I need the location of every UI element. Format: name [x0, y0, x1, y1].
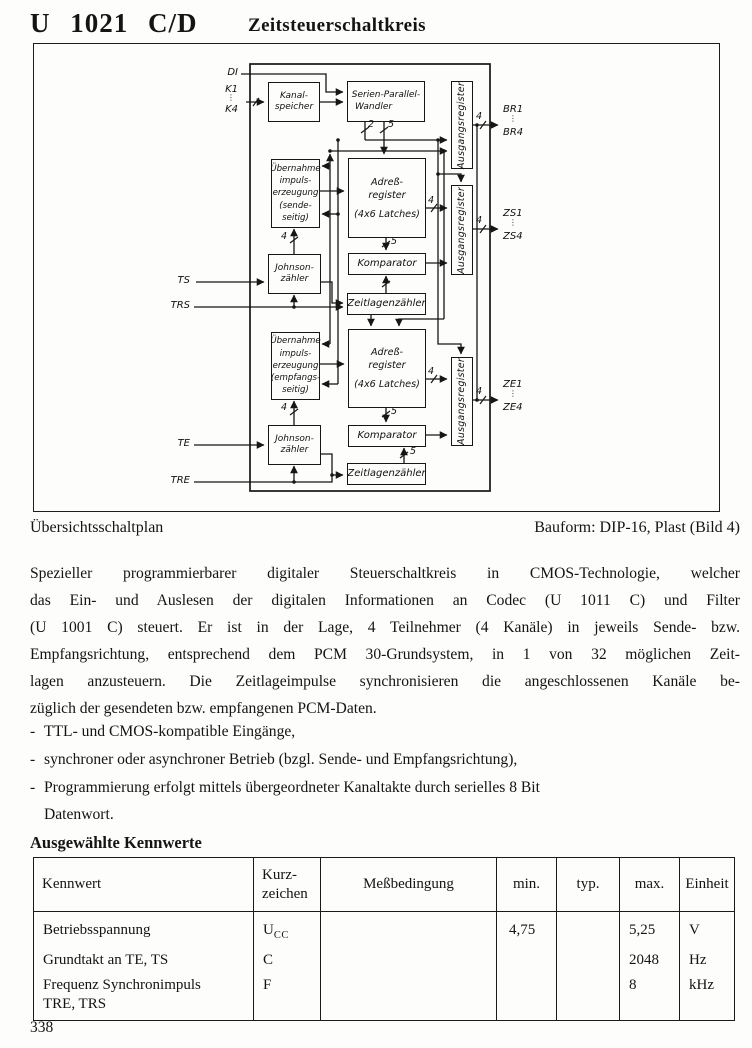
block-label: Serien-Parallel- — [352, 90, 420, 102]
block-johnson-zaehler-empfang: Johnson- zähler — [268, 425, 321, 465]
bus-width-5: 5 — [388, 119, 394, 130]
cell-kennwert: Betriebsspannung Grundtakt an TE, TS Fre… — [34, 912, 254, 1021]
block-label: Adreß- — [371, 176, 403, 189]
value-kennwert: TRE, TRS — [34, 995, 253, 1014]
block-label: Ausgangsregister — [456, 187, 468, 274]
value-typ — [557, 917, 619, 947]
block-serien-parallel-wandler: Serien-Parallel- Wandler — [347, 81, 425, 122]
paragraph-line: züglich der gesendeten bzw. empfangenen … — [30, 695, 740, 722]
block-johnson-zaehler-sende: Johnson- zähler — [268, 254, 321, 294]
value-min — [497, 947, 556, 976]
page-number: 338 — [30, 1019, 53, 1037]
col-header-max: max. — [620, 858, 680, 912]
cell-einheit: V Hz kHz — [680, 912, 735, 1021]
bullet-dash: - — [30, 723, 44, 741]
block-ausgangsregister-ze: Ausgangsregister — [451, 357, 473, 446]
feature-text: synchroner oder asynchroner Betrieb (bzg… — [44, 751, 517, 768]
block-label: Übernahme — [270, 163, 320, 175]
value-kennwert: Betriebsspannung — [34, 917, 253, 947]
col-header-kennwert: Kennwert — [34, 858, 254, 912]
block-ausgangsregister-br: Ausgangsregister — [451, 81, 473, 169]
pin-di: DI — [194, 67, 238, 78]
value-kennwert: Frequenz Synchronimpuls — [34, 976, 253, 995]
value-max: 5,25 — [620, 917, 679, 947]
pin-dots-br: ⋮ — [509, 114, 553, 123]
value-typ — [557, 976, 619, 995]
pin-trs: TRS — [146, 300, 190, 311]
symbol: U — [263, 922, 274, 938]
block-label: seitig) — [282, 212, 309, 224]
cell-min: 4,75 — [497, 912, 557, 1021]
bus-width-4: 4 — [281, 402, 287, 413]
block-komparator-empfang: Komparator — [348, 425, 426, 447]
value-max: 8 — [620, 976, 679, 995]
value-messbedingung — [321, 947, 496, 976]
col-header-min: min. — [497, 858, 557, 912]
bus-width-2: 2 — [368, 119, 374, 130]
symbol: F — [254, 976, 320, 995]
feature-text: Datenwort. — [44, 806, 114, 823]
bus-width-4: 4 — [281, 231, 287, 242]
block-label: Komparator — [358, 430, 417, 442]
value-einheit: V — [680, 917, 734, 947]
block-adressregister-empfang: Adreß- register (4x6 Latches) — [348, 329, 426, 408]
block-label: register — [368, 189, 405, 202]
block-zeitlagenzaehler-empfang: Zeitlagenzähler — [347, 463, 426, 485]
package-info: Bauform: DIP-16, Plast (Bild 4) — [534, 519, 740, 537]
pin-tre: TRE — [146, 475, 190, 486]
bus-width-5: 5 — [391, 236, 397, 247]
cell-max: 5,25 2048 8 — [620, 912, 680, 1021]
table-header-row: Kennwert Kurz- zeichen Meßbedingung min.… — [34, 858, 735, 912]
block-label: Johnson- — [275, 434, 314, 446]
paragraph-line: das Ein- und Auslesen der digitalen Info… — [30, 587, 740, 614]
symbol: C — [254, 947, 320, 976]
bullet-dash: - — [30, 751, 44, 769]
figure-caption: Übersichtsschaltplan — [30, 519, 163, 537]
cell-typ — [557, 912, 620, 1021]
col-header-messbedingung: Meßbedingung — [321, 858, 497, 912]
block-label: Ausgangsregister — [456, 358, 468, 445]
block-label: Johnson- — [275, 263, 314, 275]
paragraph-line: (U 1001 C) steuert. Er ist in der Lage, … — [30, 614, 740, 641]
bullet-dash: - — [30, 779, 44, 797]
value-messbedingung — [321, 917, 496, 947]
pin-ts: TS — [146, 275, 190, 286]
pin-dots-zs: ⋮ — [509, 218, 553, 227]
pin-dots-ze: ⋮ — [509, 389, 553, 398]
block-label: (sende- — [279, 200, 311, 212]
pin-te: TE — [146, 438, 190, 449]
value-min: 4,75 — [497, 917, 556, 947]
feature-item: -TTL- und CMOS-kompatible Eingänge, — [30, 723, 295, 741]
table-title: Ausgewählte Kennwerte — [30, 833, 202, 853]
page-title: U 1021 C/D — [30, 8, 198, 39]
block-kanalspeicher: Kanal- speicher — [268, 82, 320, 122]
paragraph-line: Empfangsrichtung, entsprechend dem PCM 3… — [30, 641, 740, 668]
block-label: register — [368, 359, 405, 372]
value-typ — [557, 947, 619, 976]
kennwerte-table: Kennwert Kurz- zeichen Meßbedingung min.… — [33, 857, 735, 1021]
figure-overview-schematic: Kanal- speicher Serien-Parallel- Wandler… — [33, 43, 720, 512]
feature-item: -synchroner oder asynchroner Betrieb (bz… — [30, 751, 517, 769]
block-label: Ausgangsregister — [456, 82, 468, 169]
description-paragraph: Spezieller programmierbarer digitaler St… — [30, 560, 740, 722]
paragraph-line: lagen anzusteuern. Die Zeitlageimpulse s… — [30, 668, 740, 695]
bus-width-4: 4 — [476, 386, 482, 397]
pin-br4: BR4 — [503, 127, 547, 138]
block-label: Zeitlagenzähler — [347, 468, 425, 480]
block-label: Zeitlagenzähler — [347, 298, 425, 310]
block-label: impuls- — [280, 175, 312, 187]
block-label: (4x6 Latches) — [354, 208, 420, 221]
pin-dots-k: ⋮ — [191, 93, 235, 102]
feature-item: -Programmierung erfolgt mittels übergeor… — [30, 779, 540, 797]
col-header-kurzzeichen: Kurz- zeichen — [254, 858, 321, 912]
block-label: speicher — [275, 102, 313, 114]
value-max: 2048 — [620, 947, 679, 976]
block-label: (empfangs- — [271, 372, 320, 384]
table-body: Betriebsspannung Grundtakt an TE, TS Fre… — [34, 912, 735, 1021]
bus-width-4: 4 — [428, 195, 434, 206]
block-label: zähler — [281, 445, 309, 457]
block-label: erzeugung — [273, 187, 319, 199]
pin-k4: K4 — [194, 104, 238, 115]
bus-width-4: 4 — [476, 215, 482, 226]
block-label: Kanal- — [280, 91, 308, 103]
bus-width-4: 4 — [428, 366, 434, 377]
value-kennwert: Grundtakt an TE, TS — [34, 947, 253, 976]
value-einheit: kHz — [680, 976, 734, 995]
bus-width-5: 5 — [410, 446, 416, 457]
value-einheit: Hz — [680, 947, 734, 976]
figure-caption-row: Übersichtsschaltplan Bauform: DIP-16, Pl… — [30, 519, 740, 537]
bus-width-4: 4 — [476, 111, 482, 122]
block-label: Übernahme — [270, 335, 320, 347]
cell-kurzzeichen: UCC C F — [254, 912, 321, 1021]
block-label: seitig) — [282, 384, 309, 396]
block-label: Adreß- — [371, 346, 403, 359]
block-label: impuls- — [280, 348, 312, 360]
paragraph-line: Spezieller programmierbarer digitaler St… — [30, 560, 740, 587]
block-label: zähler — [281, 274, 309, 286]
pin-zs4: ZS4 — [503, 231, 547, 242]
symbol-subscript: CC — [274, 930, 289, 941]
block-label: (4x6 Latches) — [354, 378, 420, 391]
feature-item-continuation: Datenwort. — [44, 806, 114, 824]
block-label: Wandler — [348, 102, 392, 114]
col-header-einheit: Einheit — [680, 858, 735, 912]
cell-messbedingung — [321, 912, 497, 1021]
block-komparator-sende: Komparator — [348, 253, 426, 275]
col-header-typ: typ. — [557, 858, 620, 912]
block-label: Komparator — [358, 258, 417, 270]
block-uebernahme-sende: Übernahme impuls- erzeugung (sende- seit… — [271, 159, 320, 228]
bus-width-5: 5 — [391, 406, 397, 417]
feature-text: TTL- und CMOS-kompatible Eingänge, — [44, 723, 295, 740]
block-label: erzeugung — [273, 360, 319, 372]
block-zeitlagenzaehler-sende: Zeitlagenzähler — [347, 293, 426, 315]
block-uebernahme-empfang: Übernahme impuls- erzeugung (empfangs- s… — [271, 332, 320, 400]
block-adressregister-sende: Adreß- register (4x6 Latches) — [348, 158, 426, 238]
pin-ze4: ZE4 — [503, 402, 547, 413]
block-ausgangsregister-zs: Ausgangsregister — [451, 185, 473, 275]
value-messbedingung — [321, 976, 496, 995]
value-min — [497, 976, 556, 995]
datasheet-page: U 1021 C/D Zeitsteuerschaltkreis — [0, 0, 752, 1048]
page-subtitle: Zeitsteuerschaltkreis — [248, 15, 426, 37]
feature-text: Programmierung erfolgt mittels übergeord… — [44, 779, 540, 796]
